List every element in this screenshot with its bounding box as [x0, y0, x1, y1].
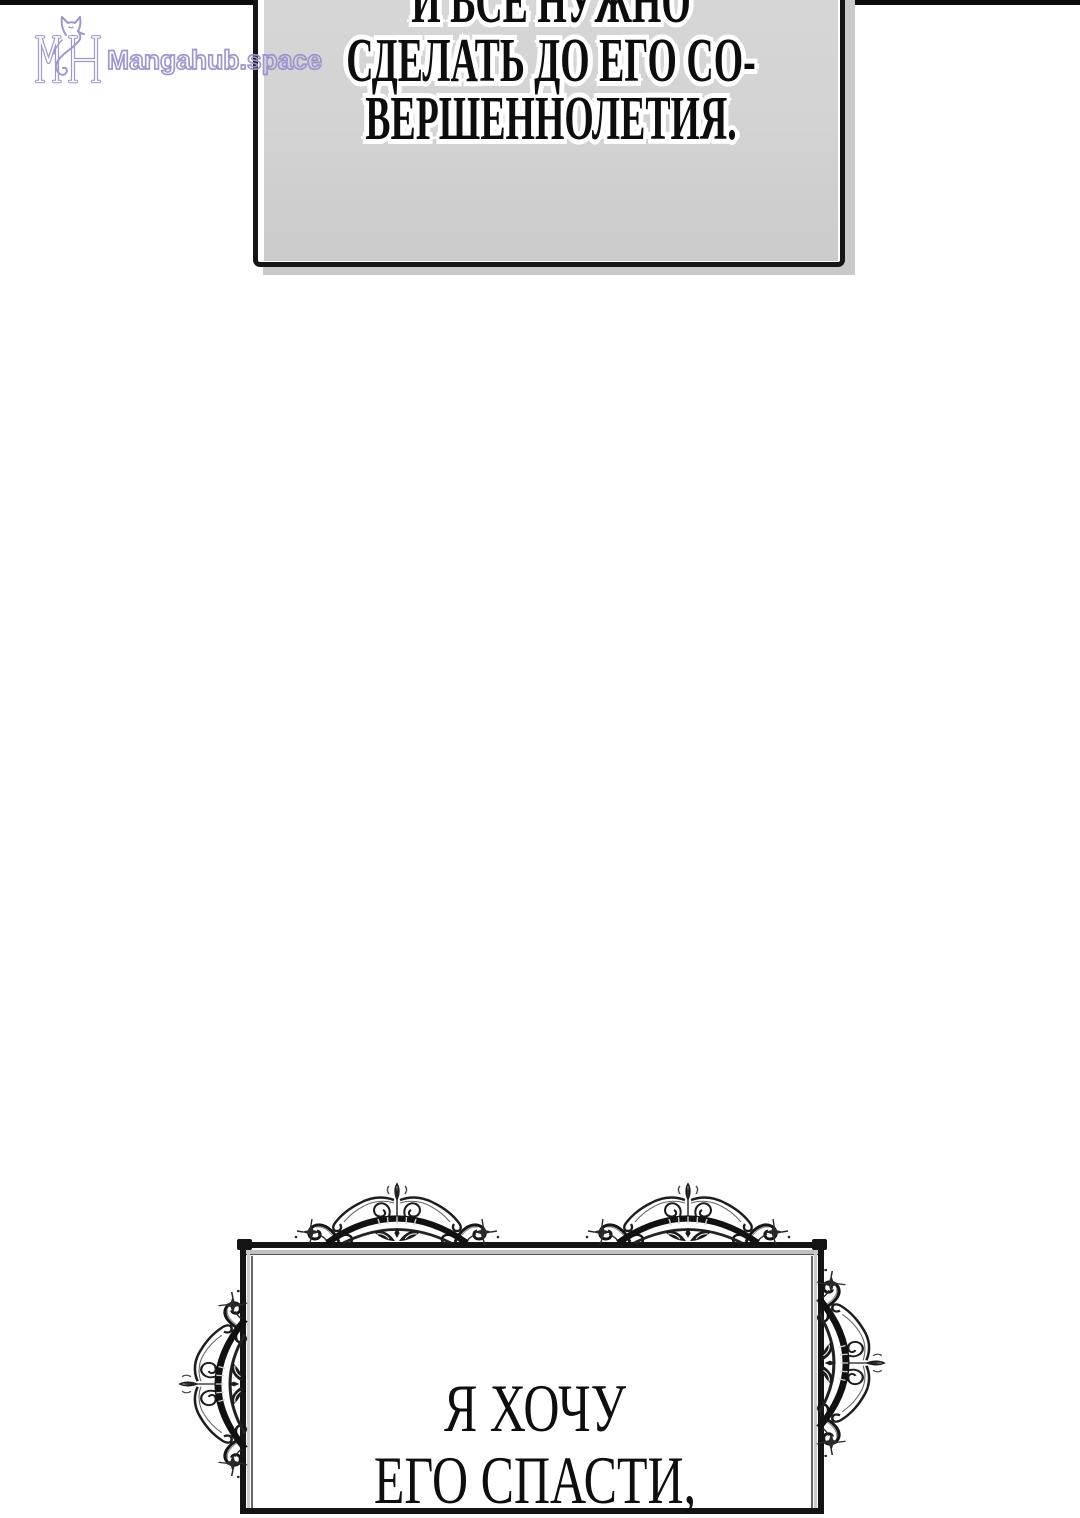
- svg-text:Mangahub.space: Mangahub.space: [107, 45, 322, 75]
